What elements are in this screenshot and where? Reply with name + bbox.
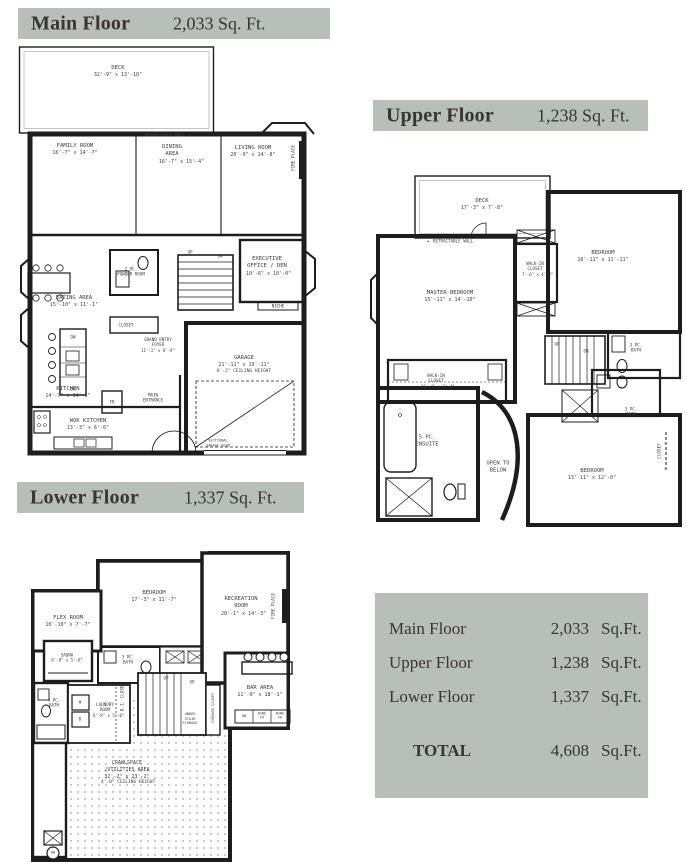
label-bi-closet: B.I. CLOSET — [121, 683, 126, 711]
label-bar-dw: DW — [242, 714, 246, 718]
dining-table-icon — [28, 273, 70, 293]
label-dn: DN — [217, 253, 222, 258]
label-up: UP — [187, 249, 192, 254]
label-dishwasher: DW — [70, 334, 75, 339]
label-retractable-wall: RETRACTABLE WALL — [145, 133, 192, 140]
main-floor-header: Main Floor 2,033 Sq. Ft. — [18, 8, 330, 39]
label-dn: DN — [583, 348, 588, 353]
label-niche: NICHE — [272, 303, 285, 308]
closet-box — [110, 317, 158, 333]
summary-main-label: Main Floor — [389, 619, 466, 639]
summary-row-total: TOTAL 4,608 Sq.Ft. — [375, 741, 648, 763]
label-family-room: FAMILY ROOM16'-7" x 14'-7" — [52, 143, 97, 157]
label-closet: CLOSET — [658, 443, 663, 459]
main-floor-plan-drawing — [18, 45, 330, 465]
label-dining-area: DINING AREA16'-7" x 15'-4" — [159, 144, 185, 166]
summary-upper-value: 1,238 — [543, 653, 589, 673]
exterior-wall — [30, 134, 304, 453]
upper-floor-title: Upper Floor — [386, 104, 494, 127]
label-crawlspace: CRAWLSPACE /UTILITIES AREA 32'-2" x 23'-… — [101, 760, 153, 786]
floorplan-page: Main Floor 2,033 Sq. Ft. Upper Floor 1,2… — [0, 0, 687, 866]
label-bath-3pc: 3 PC. BATH — [118, 655, 138, 666]
label-flex-room: FLEX ROOM10'-10" x 7'-7" — [45, 615, 90, 629]
label-bedroom-2: BEDROOM13'-11" x 12'-0" — [568, 468, 616, 482]
label-up: UP — [163, 675, 168, 680]
label-powder-room: 2 PC. POWDER ROOM — [117, 267, 145, 278]
label-master-bedroom: MASTER BEDROOM15'-11" x 14'-10" — [424, 290, 476, 304]
curved-wall — [482, 392, 518, 520]
lower-floor-header: Lower Floor 1,337 Sq. Ft. — [17, 482, 304, 513]
lower-floor-area: 1,337 Sq. Ft. — [184, 487, 277, 508]
summary-row-upper: Upper Floor 1,238 Sq.Ft. — [375, 653, 648, 675]
summary-main-value: 2,033 — [543, 619, 589, 639]
stool-icon — [49, 362, 56, 369]
label-main-entrance: MAIN ENTRANCE — [141, 393, 165, 404]
upper-floor-header: Upper Floor 1,238 Sq. Ft. — [373, 100, 648, 131]
label-office: EXECUTIVE OFFICE / DEN10'-6" x 10'-0" — [246, 256, 288, 278]
label-living-room: LIVING ROOM20'-9" x 14'-8" — [230, 145, 275, 159]
label-washer: W — [79, 699, 82, 704]
label-eating-area: EATING AREA15'-10" x 11'-1" — [50, 295, 98, 309]
label-bedroom-1: BEDROOM16'-11" x 11'-11" — [577, 250, 628, 264]
label-hot-water: HW — [51, 851, 55, 856]
label-dishwasher: DW — [70, 386, 75, 391]
fireplace-unit — [299, 141, 304, 179]
label-bath-2: 3 PC. BATH — [621, 407, 641, 418]
label-wine-fridge: WINE FR — [256, 712, 268, 721]
range-icon — [34, 411, 50, 433]
stool-icon — [280, 653, 288, 661]
label-laundry-room: LAUNDRY ROOM6'-8" x 5'-0" — [93, 702, 117, 718]
stool-icon — [268, 653, 276, 661]
deck-outline — [20, 47, 214, 133]
bath4pc-walls — [34, 683, 68, 743]
chair-icon — [33, 265, 39, 271]
label-sauna: SAUNA6'-0" x 5'-6" — [51, 653, 82, 664]
ensuite-walls — [378, 388, 478, 520]
fireplace-unit — [282, 589, 289, 623]
label-bath-1: 3 PC. BATH — [626, 343, 646, 354]
label-bar-area: BAR AREA11'-0" x 18'-1" — [237, 685, 282, 699]
label-open-to-below: OPEN TO BELOW — [481, 461, 515, 476]
upper-floor-plan: DECK17'-3" x 7'-8" RETRACTABLE WALL MAST… — [370, 170, 687, 530]
chair-icon — [57, 265, 63, 271]
label-walkin-closet-1: WALK-IN CLOSET7'-6" x 4'-4" — [522, 261, 548, 277]
main-floor-area: 2,033 Sq. Ft. — [173, 13, 266, 34]
label-retractable-wall: RETRACTABLE WALL — [427, 239, 474, 246]
chair-icon — [33, 295, 39, 301]
summary-upper-label: Upper Floor — [389, 653, 473, 673]
summary-lower-value: 1,337 — [543, 687, 589, 707]
area-summary-box: Main Floor 2,033 Sq.Ft. Upper Floor 1,23… — [375, 593, 648, 798]
label-grand-entry-foyer: GRAND ENTRY FOYER11'-1" x 8'-9" — [140, 337, 176, 353]
stool-icon — [256, 653, 264, 661]
summary-total-value: 4,608 — [543, 741, 589, 761]
label-kitchen: KITCHEN14'-7" x 14'-6" — [45, 386, 90, 400]
label-ensuite: 5 PC. ENSUITE — [411, 435, 443, 450]
label-deck: DECK17'-3" x 7'-8" — [461, 198, 503, 212]
label-walkin-closet-2: WALK-IN CLOSET16'-4" x 3'-4" — [421, 373, 451, 389]
stool-icon — [49, 376, 56, 383]
summary-total-unit: Sq.Ft. — [601, 741, 642, 761]
garage-walls — [186, 323, 304, 453]
label-storage-closet: STORAGE CLOSET — [211, 693, 215, 723]
label-up: UP — [189, 679, 194, 684]
upper-floor-area: 1,238 Sq. Ft. — [537, 105, 630, 126]
label-recreation-room: RECREATION ROOM20'-1" x 14'-3" — [221, 596, 261, 618]
summary-row-main: Main Floor 2,033 Sq.Ft. — [375, 619, 648, 641]
label-garage-door: SECTIONAL GARAGE DOOR — [206, 438, 230, 447]
label-fireplace: FIRE PLACE — [272, 593, 277, 619]
summary-row-lower: Lower Floor 1,337 Sq.Ft. — [375, 687, 648, 709]
label-wok-kitchen: WOK KITCHEN13'-3" x 6'-6" — [67, 418, 109, 432]
label-bath-4pc: 4 PC. BATH — [44, 698, 64, 709]
chair-icon — [45, 265, 51, 271]
label-bedroom: BEDROOM17'-3" x 11'-7" — [131, 590, 176, 604]
summary-main-unit: Sq.Ft. — [601, 619, 642, 639]
stool-icon — [49, 348, 56, 355]
label-wine-fridge: WINE FR — [274, 712, 286, 721]
label-closet: CLOSET — [118, 322, 133, 327]
entry-door-swing — [152, 431, 196, 453]
label-under-stair-storage: UNDER STAIR STORAGE — [179, 712, 201, 726]
label-fridge: FR — [109, 399, 114, 404]
summary-total-label: TOTAL — [413, 741, 471, 761]
main-floor-title: Main Floor — [31, 12, 130, 35]
label-garage: GARAGE21'-11" x 19'-11" 8'-2" CEILING HE… — [217, 355, 271, 375]
toilet-icon — [444, 484, 456, 500]
sink-icon — [612, 336, 625, 352]
label-deck: DECK32'-9" x 13'-10" — [94, 65, 142, 79]
lower-floor-plan: BEDROOM17'-3" x 11'-7" FLEX ROOM10'-10" … — [20, 545, 320, 866]
label-dryer: D — [79, 716, 82, 721]
staircase — [178, 255, 233, 310]
stool-icon — [244, 653, 252, 661]
main-floor-plan: DECK32'-9" x 13'-10" RETRACTABLE WALL FA… — [18, 45, 330, 465]
label-fireplace: FIRE PLACE — [292, 145, 297, 171]
lower-floor-title: Lower Floor — [30, 486, 139, 509]
stool-icon — [49, 334, 56, 341]
summary-upper-unit: Sq.Ft. — [601, 653, 642, 673]
summary-lower-unit: Sq.Ft. — [601, 687, 642, 707]
label-up: UP — [554, 341, 559, 346]
summary-lower-label: Lower Floor — [389, 687, 474, 707]
